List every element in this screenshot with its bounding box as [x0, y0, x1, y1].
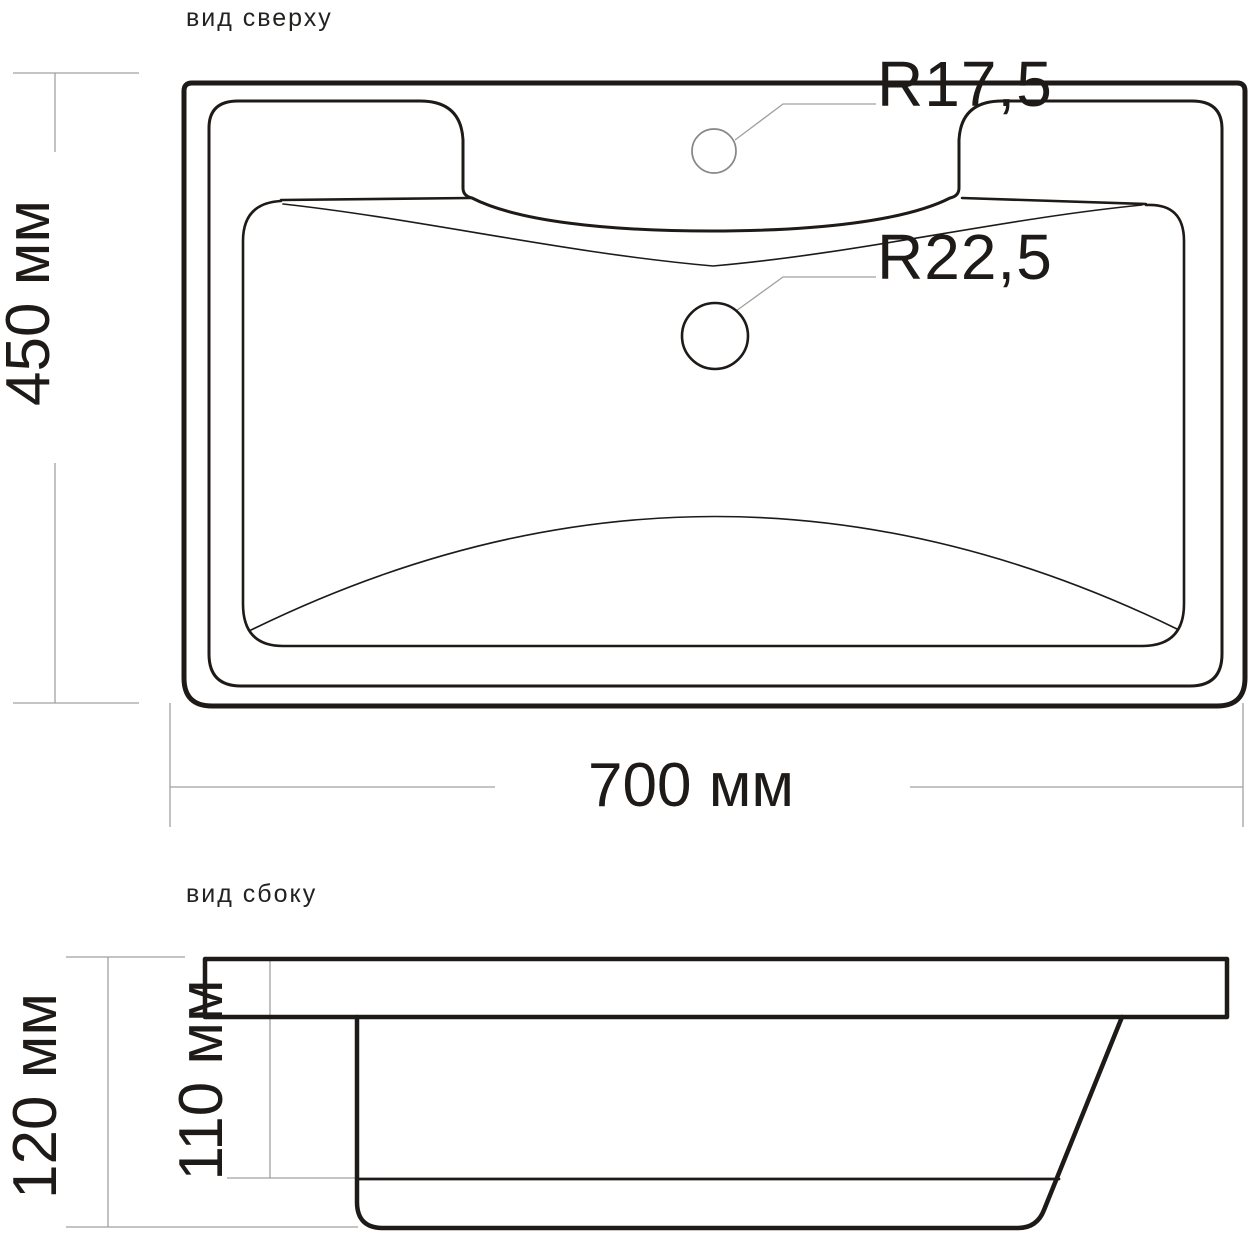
leader-r22	[736, 277, 876, 311]
topview-basin-floor-arc	[249, 516, 1177, 631]
dim-label-120mm: 120 мм	[5, 993, 67, 1199]
top-view-linework	[184, 83, 1245, 706]
sideview-rim-slab	[205, 959, 1227, 1017]
dim-label-450mm: 450 мм	[0, 200, 60, 406]
dim-label-700mm: 700 мм	[588, 755, 794, 817]
radius-label-r22: R22,5	[877, 225, 1053, 289]
side-view-title: вид сбоку	[186, 882, 317, 907]
dim-label-110mm: 110 мм	[171, 979, 233, 1180]
topview-outer-rim	[184, 83, 1245, 706]
overflow-hole-circle	[682, 303, 748, 369]
sink-technical-drawing: вид сверху 450 мм 700 мм R17,5 R22,5 вид…	[0, 0, 1255, 1244]
topview-inner-rim-ledge	[209, 101, 1222, 686]
faucet-hole-circle	[692, 129, 736, 173]
side-view-linework	[205, 959, 1227, 1228]
top-view-title: вид сверху	[186, 6, 333, 31]
leader-r17	[735, 104, 876, 140]
sideview-bowl-outline	[357, 1017, 1122, 1228]
topview-basin-back-edge-left	[281, 198, 470, 200]
topview-basin-back-edge-right	[962, 198, 1146, 204]
radius-label-r17: R17,5	[877, 52, 1053, 116]
